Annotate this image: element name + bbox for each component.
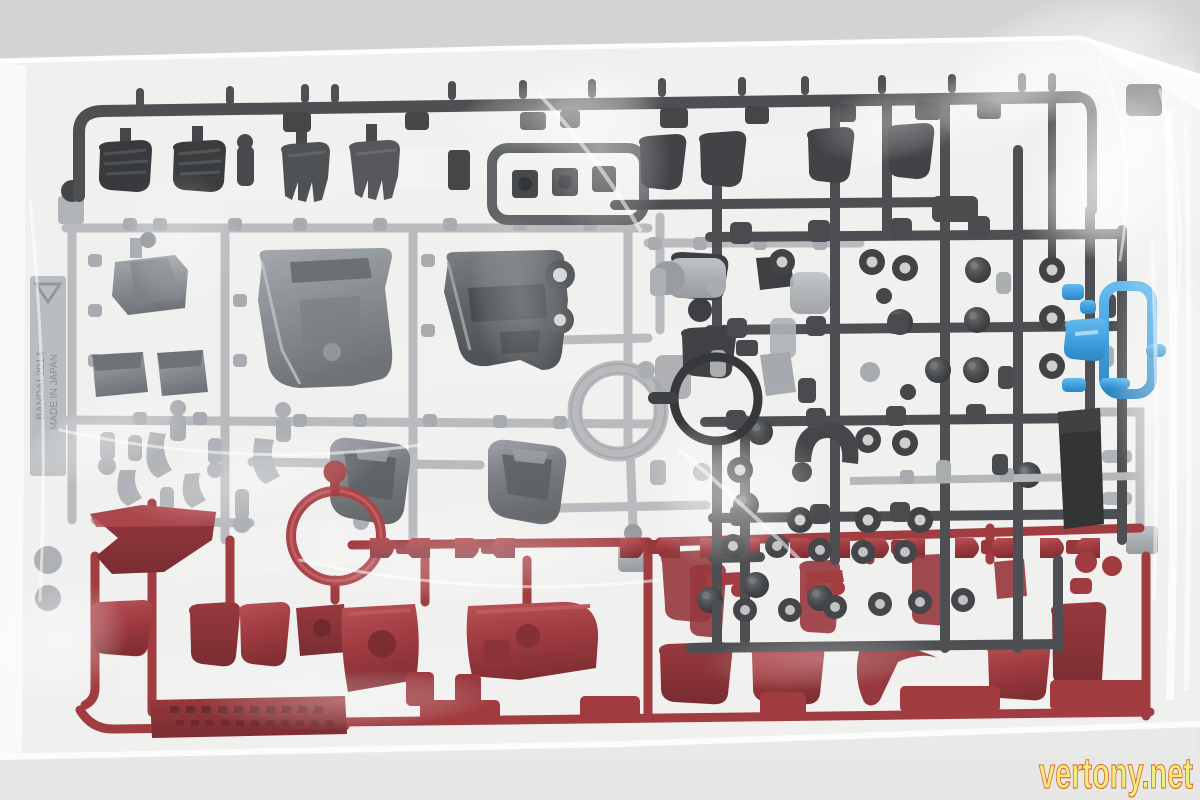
- svg-text:vertony.net: vertony.net: [1039, 749, 1193, 798]
